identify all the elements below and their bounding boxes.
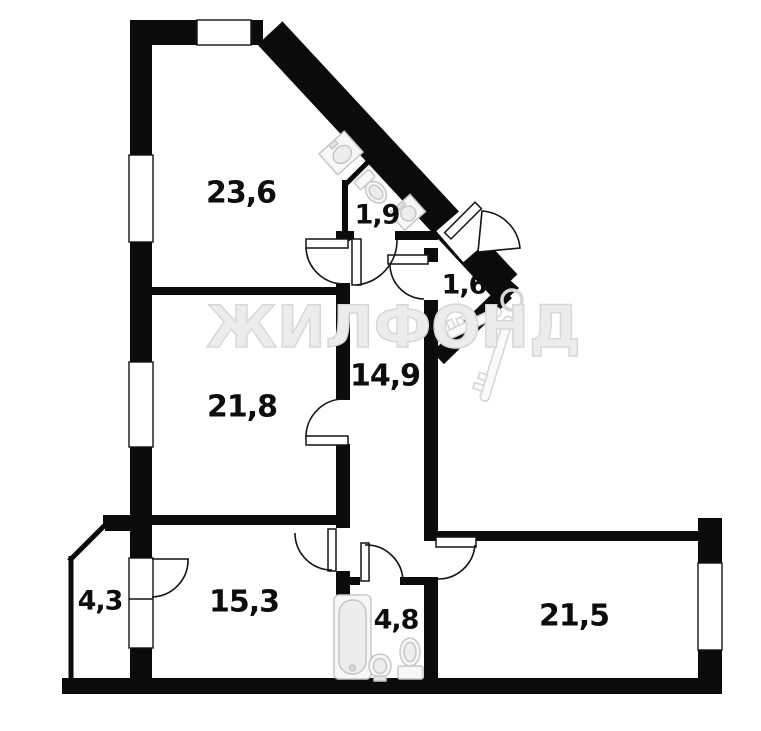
wall-divider-rooms-left <box>148 287 348 295</box>
wall-bath-top-right <box>400 577 438 585</box>
window-left-lower <box>129 362 153 447</box>
door-arc-balcony <box>152 559 188 597</box>
room-area-label-4-8: 4,8 <box>374 605 419 636</box>
door-leaf-room-top-left <box>306 239 348 248</box>
room-area-label-1-6: 1,6 <box>442 270 487 301</box>
door-arc-bathroom <box>365 545 403 581</box>
wall-bottom-exterior <box>62 678 722 694</box>
door-arc-wc <box>356 240 397 285</box>
room-area-label-21-5: 21,5 <box>539 599 609 634</box>
wall-wc-bottom-right <box>395 231 438 240</box>
room-area-label-23-6: 23,6 <box>206 176 276 211</box>
room-area-label-14-9: 14,9 <box>350 359 420 394</box>
room-area-label-21-8: 21,8 <box>207 390 277 425</box>
door-arc-room-top-left <box>306 248 344 284</box>
door-leaf-room-bottom-left <box>328 529 336 571</box>
door-arc-room-mid-left <box>306 399 344 437</box>
wall-right-lower <box>698 650 722 680</box>
door-leaf-bathroom <box>361 543 369 581</box>
door-arc-entrance <box>478 211 520 252</box>
door-arc-entry-bay <box>390 264 424 299</box>
room-area-label-1-9: 1,9 <box>355 200 400 231</box>
door-leaf-room-bottom-right <box>436 537 476 547</box>
wall-bath-top-left <box>348 577 360 585</box>
room-area-label-15-3: 15,3 <box>209 585 279 620</box>
toilet-icon <box>398 638 423 679</box>
wall-right-upper <box>698 518 722 563</box>
door-arc-room-bottom-left <box>295 533 332 570</box>
window-left-upper <box>129 155 153 242</box>
door-leaf-room-mid-left <box>306 436 348 445</box>
room-area-label-4-3: 4,3 <box>78 586 123 617</box>
wall-corridor-left-2 <box>336 283 350 400</box>
floor-plan: ЖИЛФОНД <box>0 0 761 731</box>
window-top <box>197 20 251 45</box>
door-arc-room-bottom-right <box>438 545 475 579</box>
wall-wc-left <box>342 180 348 235</box>
bathtub-icon <box>334 595 371 679</box>
balcony-door-window-unit <box>129 558 153 648</box>
window-right <box>698 563 722 650</box>
diagonal-walls <box>270 33 506 358</box>
wall-room-br-top <box>438 531 702 541</box>
door-leaf-wc <box>352 239 361 285</box>
sink-icon <box>369 654 391 681</box>
wall-corridor-right-3 <box>424 578 438 680</box>
walls <box>62 20 722 694</box>
wall-corridor-right-2 <box>424 300 438 541</box>
wall-corridor-left-3 <box>336 444 350 528</box>
